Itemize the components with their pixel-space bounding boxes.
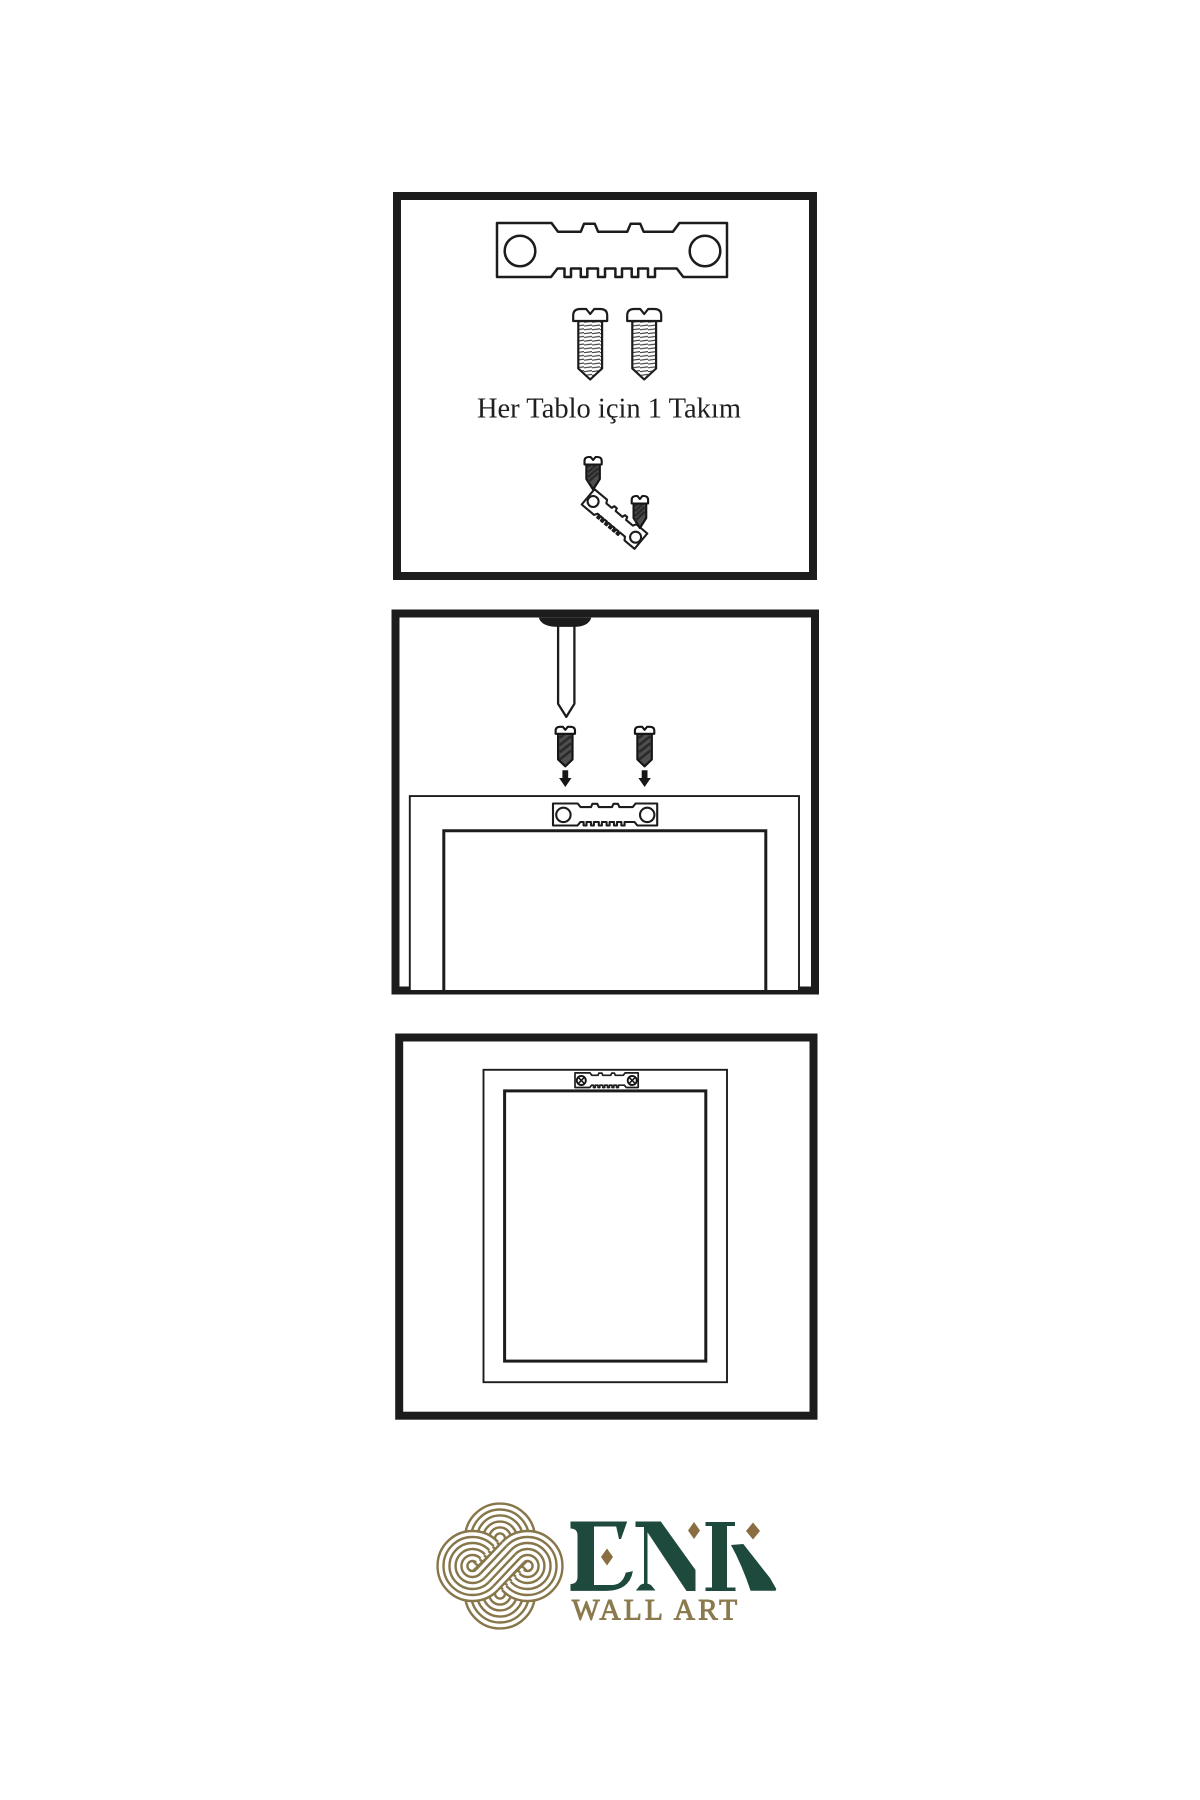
- svg-text:Her Tablo için 1 Takım: Her Tablo için 1 Takım: [477, 394, 741, 425]
- svg-text:WALL ART: WALL ART: [572, 1595, 741, 1627]
